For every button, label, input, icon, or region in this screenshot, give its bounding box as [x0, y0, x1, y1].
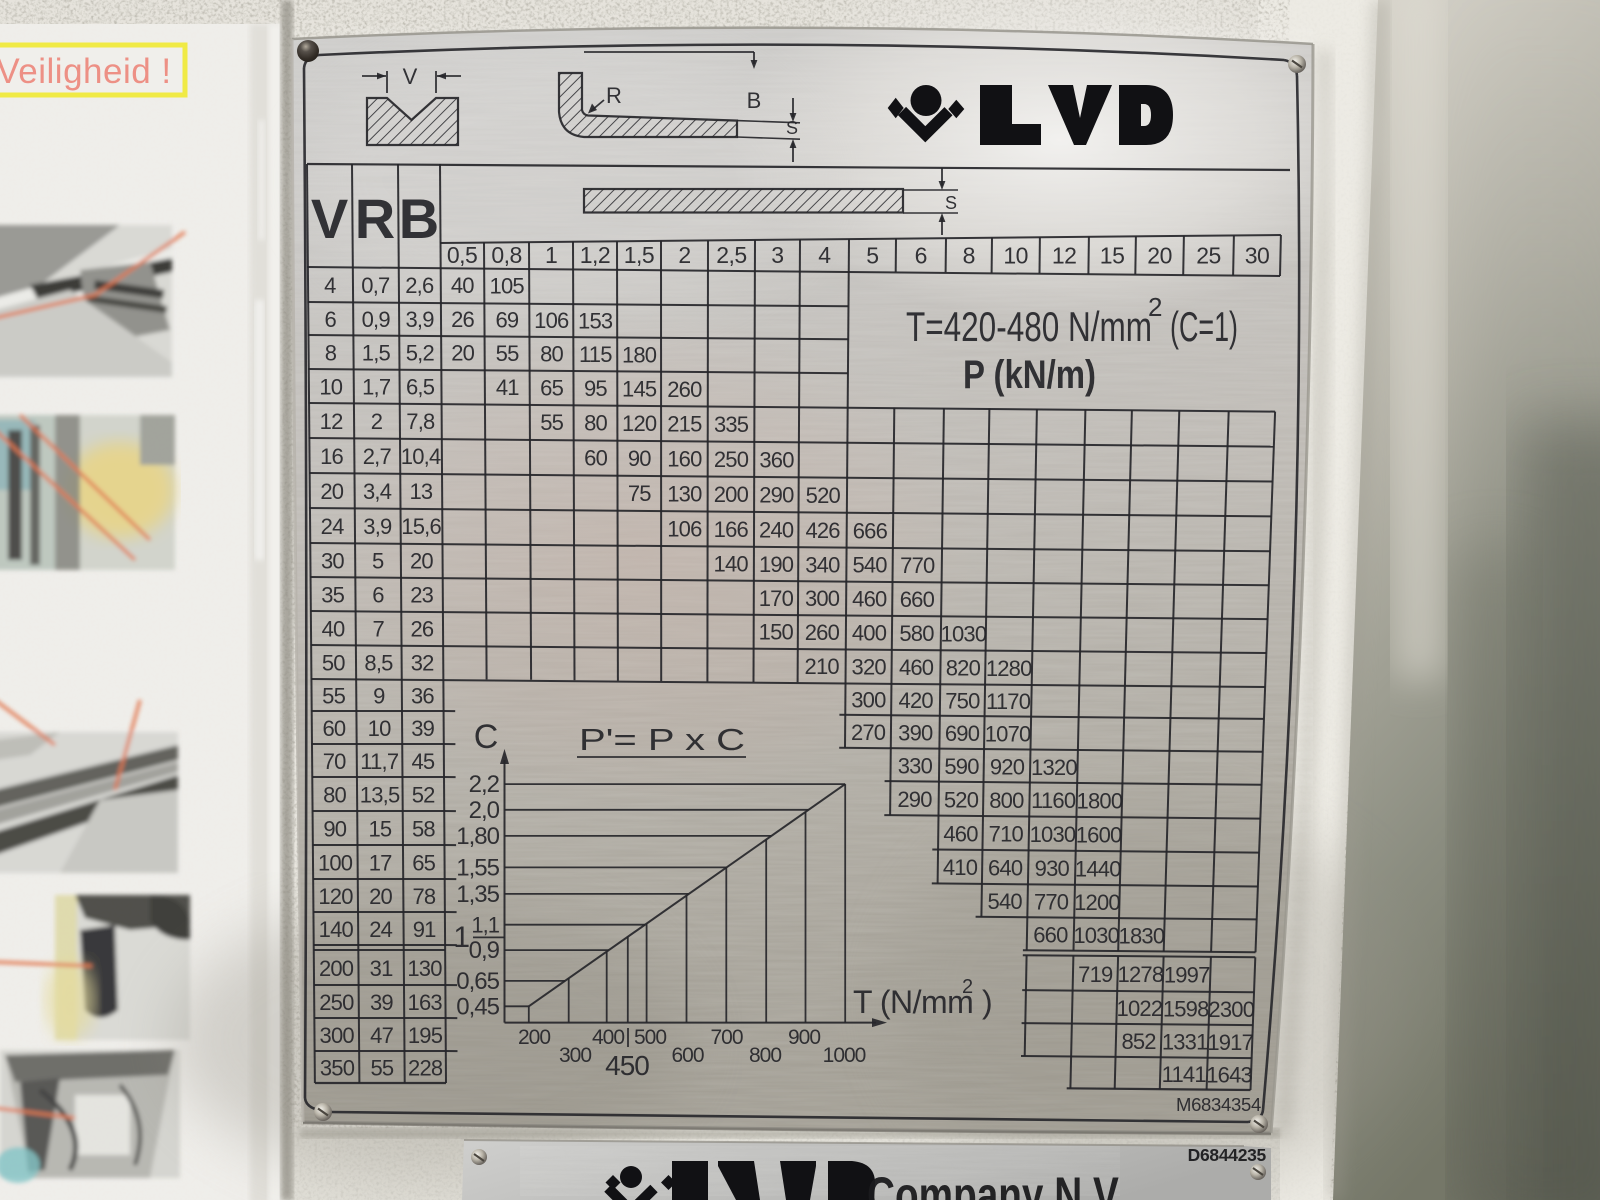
svg-text:3,9: 3,9	[363, 514, 392, 539]
svg-text:290: 290	[759, 482, 794, 507]
svg-text:15: 15	[368, 817, 391, 842]
svg-text:520: 520	[806, 483, 841, 508]
svg-text:65: 65	[540, 376, 563, 401]
svg-text:300: 300	[805, 586, 840, 611]
svg-text:920: 920	[990, 754, 1025, 779]
svg-text:1,55: 1,55	[456, 854, 499, 881]
svg-text:1,5: 1,5	[624, 242, 654, 268]
svg-text:1070: 1070	[985, 721, 1031, 746]
svg-text:25: 25	[1196, 243, 1221, 269]
svg-text:1030: 1030	[1030, 822, 1076, 847]
svg-text:10,4: 10,4	[401, 444, 441, 469]
svg-text:15: 15	[1100, 242, 1125, 268]
svg-text:460: 460	[852, 587, 887, 612]
svg-text:200: 200	[714, 482, 749, 507]
svg-text:17: 17	[369, 851, 392, 876]
svg-text:1030: 1030	[1073, 923, 1119, 948]
svg-text:5: 5	[866, 242, 878, 268]
svg-text:330: 330	[898, 753, 933, 778]
svg-text:5,2: 5,2	[406, 341, 435, 366]
svg-text:D6844235: D6844235	[1188, 1145, 1267, 1165]
svg-text:100: 100	[318, 851, 353, 876]
svg-text:340: 340	[805, 552, 840, 577]
svg-text:2: 2	[1148, 292, 1162, 322]
svg-text:60: 60	[584, 446, 607, 471]
svg-text:270: 270	[851, 720, 886, 745]
svg-text:(C=1): (C=1)	[1170, 303, 1238, 350]
svg-text:540: 540	[988, 889, 1023, 914]
svg-text:450: 450	[605, 1050, 649, 1081]
svg-text:166: 166	[714, 517, 749, 542]
svg-text:23: 23	[410, 583, 433, 608]
svg-text:250: 250	[714, 447, 749, 472]
svg-text:80: 80	[584, 411, 607, 436]
svg-text:95: 95	[584, 376, 607, 401]
svg-text:666: 666	[853, 518, 888, 543]
svg-text:30: 30	[1245, 243, 1270, 269]
svg-text:80: 80	[540, 342, 563, 367]
svg-text:1440: 1440	[1075, 857, 1121, 882]
svg-text:590: 590	[944, 754, 979, 779]
svg-text:20: 20	[1147, 242, 1172, 268]
svg-text:50: 50	[322, 651, 345, 676]
svg-text:105: 105	[490, 274, 525, 299]
svg-text:153: 153	[578, 309, 613, 334]
svg-text:10: 10	[319, 375, 342, 400]
svg-text:210: 210	[805, 654, 840, 679]
svg-text:55: 55	[322, 684, 345, 709]
svg-text:1: 1	[453, 921, 470, 954]
svg-text:R: R	[355, 187, 395, 250]
svg-text:0,8: 0,8	[491, 242, 521, 268]
svg-text:20: 20	[451, 341, 474, 366]
svg-text:2300: 2300	[1208, 997, 1254, 1022]
svg-text:40: 40	[451, 273, 474, 298]
svg-text:260: 260	[667, 377, 702, 402]
svg-text:390: 390	[898, 721, 933, 746]
svg-text:1000: 1000	[823, 1044, 866, 1067]
svg-text:S: S	[786, 118, 798, 138]
svg-text:75: 75	[628, 481, 651, 506]
svg-text:350: 350	[320, 1056, 355, 1081]
svg-text:700: 700	[710, 1026, 742, 1049]
svg-text:45: 45	[411, 749, 434, 774]
svg-text:2,7: 2,7	[363, 444, 392, 469]
svg-text:300: 300	[320, 1023, 355, 1048]
svg-text:580: 580	[899, 621, 934, 646]
svg-text:40: 40	[322, 617, 345, 642]
svg-text:660: 660	[900, 587, 935, 612]
svg-text:Veiligheid !: Veiligheid !	[0, 52, 172, 91]
svg-text:130: 130	[407, 956, 442, 981]
svg-text:13: 13	[409, 479, 432, 504]
svg-text:400: 400	[852, 621, 887, 646]
svg-text:S: S	[945, 193, 957, 213]
svg-text:640: 640	[988, 856, 1023, 881]
svg-text:228: 228	[408, 1056, 443, 1081]
svg-text:6: 6	[324, 307, 336, 332]
svg-text:0,45: 0,45	[456, 993, 499, 1020]
svg-text:65: 65	[412, 851, 435, 876]
svg-text:90: 90	[323, 817, 346, 842]
svg-text:120: 120	[318, 884, 353, 909]
svg-text:360: 360	[759, 447, 794, 472]
svg-text:Company N.V.: Company N.V.	[867, 1167, 1126, 1200]
svg-text:12: 12	[320, 409, 343, 434]
svg-text:55: 55	[370, 1056, 393, 1081]
svg-text:91: 91	[413, 917, 436, 942]
svg-text:3,9: 3,9	[406, 307, 435, 332]
svg-text:4: 4	[818, 242, 831, 268]
svg-text:163: 163	[408, 990, 443, 1015]
svg-text:300: 300	[851, 688, 886, 713]
svg-text:1,2: 1,2	[580, 242, 610, 268]
svg-text:2: 2	[371, 409, 383, 434]
svg-text:2,6: 2,6	[405, 273, 434, 298]
svg-text:710: 710	[989, 822, 1024, 847]
svg-text:130: 130	[667, 481, 702, 506]
svg-text:290: 290	[897, 787, 932, 812]
svg-text:47: 47	[370, 1023, 393, 1048]
svg-text:190: 190	[759, 552, 794, 577]
svg-text:145: 145	[622, 377, 657, 402]
svg-text:180: 180	[622, 343, 657, 368]
svg-text:26: 26	[410, 617, 433, 642]
svg-text:B: B	[747, 88, 762, 113]
svg-text:215: 215	[667, 412, 702, 437]
svg-text:1141: 1141	[1162, 1062, 1207, 1087]
svg-text:1,5: 1,5	[362, 341, 391, 366]
svg-text:41: 41	[496, 375, 519, 400]
svg-text:26: 26	[451, 307, 474, 332]
svg-text:719: 719	[1078, 962, 1113, 987]
svg-text:200: 200	[319, 956, 354, 981]
svg-text:80: 80	[323, 783, 346, 808]
svg-text:7: 7	[372, 617, 384, 642]
svg-text:0,9: 0,9	[362, 307, 391, 332]
svg-text:55: 55	[540, 410, 563, 435]
svg-text:10: 10	[368, 716, 391, 741]
svg-text:0,5: 0,5	[447, 242, 477, 268]
svg-text:R: R	[606, 83, 622, 108]
svg-text:20: 20	[320, 479, 343, 504]
svg-text:10: 10	[1003, 242, 1028, 268]
svg-text:P (kN/m): P (kN/m)	[963, 353, 1096, 397]
svg-text:1200: 1200	[1074, 890, 1120, 915]
svg-text:7,8: 7,8	[406, 409, 435, 434]
svg-text:1830: 1830	[1119, 923, 1165, 948]
svg-text:C: C	[474, 718, 499, 756]
svg-text:1030: 1030	[941, 622, 987, 647]
svg-text:520: 520	[944, 787, 979, 812]
svg-text:32: 32	[411, 651, 434, 676]
svg-text:P'= P x C: P'= P x C	[579, 722, 745, 757]
svg-text:106: 106	[534, 308, 569, 333]
svg-text:1: 1	[545, 242, 557, 268]
svg-text:20: 20	[410, 549, 433, 574]
svg-text:90: 90	[628, 446, 651, 471]
svg-text:800: 800	[989, 788, 1024, 813]
svg-text:8,5: 8,5	[364, 651, 393, 676]
svg-text:6,5: 6,5	[406, 375, 435, 400]
svg-text:115: 115	[579, 342, 612, 367]
svg-text:6: 6	[915, 242, 927, 268]
svg-text:320: 320	[852, 655, 887, 680]
svg-text:39: 39	[370, 990, 393, 1015]
svg-text:400: 400	[592, 1026, 624, 1049]
svg-text:460: 460	[899, 655, 934, 680]
svg-text:T=420-480 N/mm: T=420-480 N/mm	[906, 303, 1152, 350]
svg-text:0,65: 0,65	[456, 968, 499, 995]
svg-text:24: 24	[369, 917, 392, 942]
svg-text:13,5: 13,5	[360, 783, 400, 808]
svg-text:6: 6	[372, 583, 384, 608]
svg-text:1331: 1331	[1162, 1030, 1208, 1055]
svg-text:8: 8	[963, 242, 975, 268]
svg-text:200: 200	[518, 1026, 550, 1049]
svg-text:B: B	[399, 187, 439, 250]
svg-text:T (N/mm: T (N/mm	[853, 984, 973, 1020]
svg-text:770: 770	[1034, 890, 1069, 915]
svg-text:160: 160	[667, 447, 702, 472]
svg-text:70: 70	[323, 749, 346, 774]
svg-text:V: V	[403, 64, 418, 89]
svg-text:1320: 1320	[1031, 755, 1077, 780]
svg-text:426: 426	[805, 518, 840, 543]
svg-text:1,35: 1,35	[456, 881, 499, 908]
svg-text:106: 106	[667, 516, 702, 541]
svg-text:3: 3	[771, 242, 783, 268]
svg-text:1,1: 1,1	[471, 913, 499, 938]
svg-text:20: 20	[369, 884, 392, 909]
svg-text:1800: 1800	[1077, 789, 1123, 814]
svg-text:1170: 1170	[986, 689, 1031, 714]
svg-text:420: 420	[899, 688, 934, 713]
svg-text:5: 5	[372, 549, 384, 574]
svg-text:3,4: 3,4	[363, 479, 392, 504]
svg-text:36: 36	[411, 684, 434, 709]
svg-text:300: 300	[559, 1044, 591, 1067]
svg-text:78: 78	[412, 884, 435, 909]
svg-text:460: 460	[943, 821, 978, 846]
svg-text:55: 55	[496, 341, 519, 366]
svg-text:1278: 1278	[1118, 962, 1164, 987]
svg-text:0,7: 0,7	[361, 273, 390, 298]
svg-text:600: 600	[671, 1044, 703, 1067]
svg-text:140: 140	[319, 917, 354, 942]
svg-text:250: 250	[319, 990, 354, 1015]
svg-text:150: 150	[759, 620, 794, 645]
svg-text:): )	[982, 984, 993, 1020]
svg-text:900: 900	[788, 1026, 820, 1049]
svg-text:1160: 1160	[1031, 788, 1076, 813]
svg-text:4: 4	[324, 273, 336, 298]
svg-text:930: 930	[1035, 856, 1070, 881]
svg-text:770: 770	[900, 553, 935, 578]
svg-text:1,7: 1,7	[362, 375, 391, 400]
svg-text:12: 12	[1052, 242, 1077, 268]
svg-text:M6834354: M6834354	[1176, 1094, 1261, 1115]
svg-text:120: 120	[622, 411, 657, 436]
svg-text:9: 9	[373, 684, 385, 709]
svg-text:2: 2	[962, 976, 973, 998]
svg-text:170: 170	[759, 586, 794, 611]
svg-text:335: 335	[714, 412, 749, 437]
svg-text:800: 800	[749, 1044, 781, 1067]
svg-text:195: 195	[408, 1023, 443, 1048]
svg-text:820: 820	[946, 656, 981, 681]
svg-text:0,9: 0,9	[469, 937, 500, 964]
svg-text:540: 540	[852, 553, 887, 578]
svg-text:690: 690	[945, 721, 980, 746]
svg-text:24: 24	[321, 514, 344, 539]
svg-text:2: 2	[678, 242, 690, 268]
svg-text:1598: 1598	[1163, 997, 1209, 1022]
svg-text:60: 60	[322, 716, 345, 741]
svg-text:15,6: 15,6	[401, 514, 441, 539]
svg-text:1,80: 1,80	[456, 823, 499, 850]
svg-text:140: 140	[714, 551, 749, 576]
svg-text:2,0: 2,0	[469, 797, 500, 824]
svg-text:240: 240	[759, 517, 794, 542]
svg-text:1643: 1643	[1206, 1062, 1252, 1087]
svg-text:1997: 1997	[1164, 963, 1210, 988]
svg-text:31: 31	[370, 956, 393, 981]
svg-text:69: 69	[495, 308, 518, 333]
svg-text:1600: 1600	[1076, 823, 1122, 848]
svg-text:260: 260	[805, 620, 840, 645]
svg-text:410: 410	[943, 855, 978, 880]
svg-text:660: 660	[1033, 923, 1068, 948]
svg-text:39: 39	[411, 716, 434, 741]
svg-text:52: 52	[412, 783, 435, 808]
svg-text:58: 58	[412, 817, 435, 842]
svg-text:16: 16	[320, 444, 343, 469]
svg-text:2,5: 2,5	[716, 242, 746, 268]
svg-text:500: 500	[634, 1026, 666, 1049]
svg-text:852: 852	[1121, 1029, 1156, 1054]
svg-text:V: V	[311, 187, 348, 250]
svg-text:1280: 1280	[986, 656, 1032, 681]
svg-text:30: 30	[321, 549, 344, 574]
svg-text:11,7: 11,7	[360, 749, 399, 774]
svg-text:1917: 1917	[1207, 1030, 1253, 1055]
svg-text:35: 35	[321, 583, 344, 608]
svg-text:8: 8	[325, 341, 337, 366]
svg-text:2,2: 2,2	[469, 771, 500, 798]
svg-text:750: 750	[945, 689, 980, 714]
svg-text:1022: 1022	[1117, 996, 1163, 1021]
